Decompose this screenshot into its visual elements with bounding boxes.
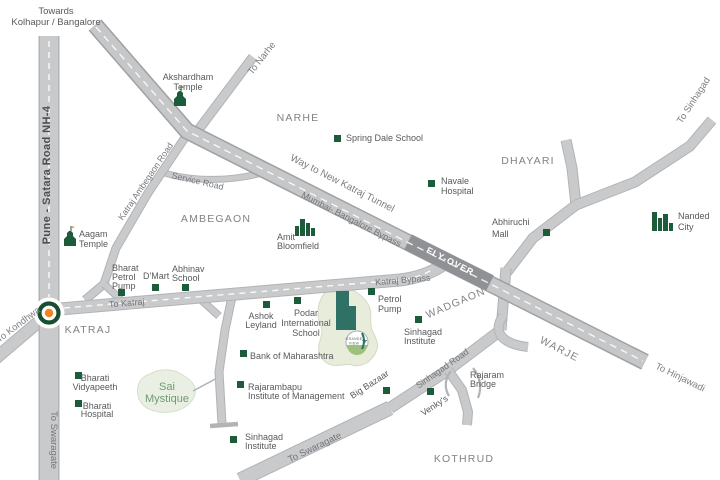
aagam-temple-icon (64, 226, 76, 246)
label-bharat-l3: Pump (112, 281, 136, 291)
label-dmart: D'Mart (143, 271, 170, 281)
label-towards-l2: Kolhapur / Bangalore (11, 17, 100, 28)
label-abhiruchi-l1: Abhiruchi (492, 217, 530, 227)
label-podar-l2: International (281, 318, 331, 328)
label-area-warje: WARJE (538, 334, 581, 364)
label-sinhagad-inst-upper-l2: Institute (404, 336, 436, 346)
marker-spring-dale (334, 135, 341, 142)
marker-abhinav (182, 284, 189, 291)
marker-venkys (427, 388, 434, 395)
marker-podar (294, 297, 301, 304)
marker-sinhagad-inst-lower (230, 436, 237, 443)
label-to-hinjawadi: To Hinjawadi (653, 361, 706, 395)
label-abhinav-l2: School (172, 273, 200, 283)
location-map: GRANDE VIEW 7 (0, 0, 720, 480)
major-roads (49, 25, 645, 480)
marker-navale (428, 180, 435, 187)
marker-petrol-pump (368, 288, 375, 295)
label-big-bazaar: Big Bazaar (348, 368, 390, 400)
marker-ashok (263, 301, 270, 308)
label-venkys: Venky's (419, 393, 450, 418)
label-bank: Bank of Maharashtra (250, 351, 334, 361)
map-canvas: GRANDE VIEW 7 (0, 0, 720, 480)
label-sinhagad-inst-lower-l2: Institute (245, 441, 277, 451)
label-service-road: Service Road (171, 170, 225, 192)
label-abhiruchi-l2: Mall (492, 229, 509, 239)
label-amit-l2: Bloomfield (277, 241, 319, 251)
label-rajaram-bridge-l2: Bridge (470, 379, 496, 389)
label-area-ambegaon: AMBEGAON (181, 213, 251, 225)
logo-numeral: 7 (361, 339, 367, 350)
label-towards-l1: Towards (38, 6, 74, 17)
label-petrol-l2: Pump (378, 304, 402, 314)
label-ashok-l2: Leyland (245, 320, 277, 330)
label-navale-l2: Hospital (441, 186, 474, 196)
label-akshardham-l2: Temple (173, 82, 202, 92)
label-podar-l1: Podar (294, 308, 318, 318)
label-rajarambapu-l2: Institute of Management (248, 391, 345, 401)
marker-bharati-hospital (75, 400, 82, 407)
label-area-katraj: KATRAJ (65, 324, 112, 336)
label-area-dhayari: DHAYARI (501, 155, 555, 167)
marker-rajarambapu (237, 381, 244, 388)
label-podar-l3: School (292, 328, 320, 338)
marker-dmart (152, 284, 159, 291)
marker-big-bazaar (383, 387, 390, 394)
label-road-nh4: Pune - Satara Road NH-4 (41, 105, 53, 244)
label-bharati-hospital-l2: Hospital (81, 409, 114, 419)
marker-abhiruchi (543, 229, 550, 236)
label-sai-mystique-l2: Mystique (145, 393, 189, 405)
amit-bloomfield-buildings-icon (295, 219, 315, 236)
logo-text-view: VIEW (349, 342, 360, 346)
label-nanded-l1: Nanded (678, 211, 710, 221)
label-petrol-l1: Petrol (378, 294, 402, 304)
marker-sinhagad-inst-upper (415, 316, 422, 323)
road-end-cap (210, 424, 238, 426)
label-to-swaragate-nh4: To Swaragate (48, 411, 59, 469)
label-area-narhe: NARHE (277, 112, 320, 124)
nanded-city-buildings-icon (652, 212, 673, 231)
label-sai-mystique-l1: Sai (159, 381, 175, 393)
label-area-kothrud: KOTHRUD (434, 453, 494, 465)
label-akshardham-l1: Akshardham (163, 72, 214, 82)
label-bharati-vidyapeeth-l2: Vidyapeeth (73, 382, 118, 392)
marker-bank (240, 350, 247, 357)
label-katraj-ambegaon-road: Katraj Ambegaon Road (116, 141, 175, 222)
label-nanded-l2: City (678, 222, 694, 232)
label-aagam-l1: Aagam (79, 229, 108, 239)
label-navale-l1: Navale (441, 176, 469, 186)
label-aagam-l2: Temple (79, 239, 108, 249)
label-spring-dale: Spring Dale School (346, 133, 423, 143)
label-area-wadgaon: WADGAON (424, 285, 487, 321)
